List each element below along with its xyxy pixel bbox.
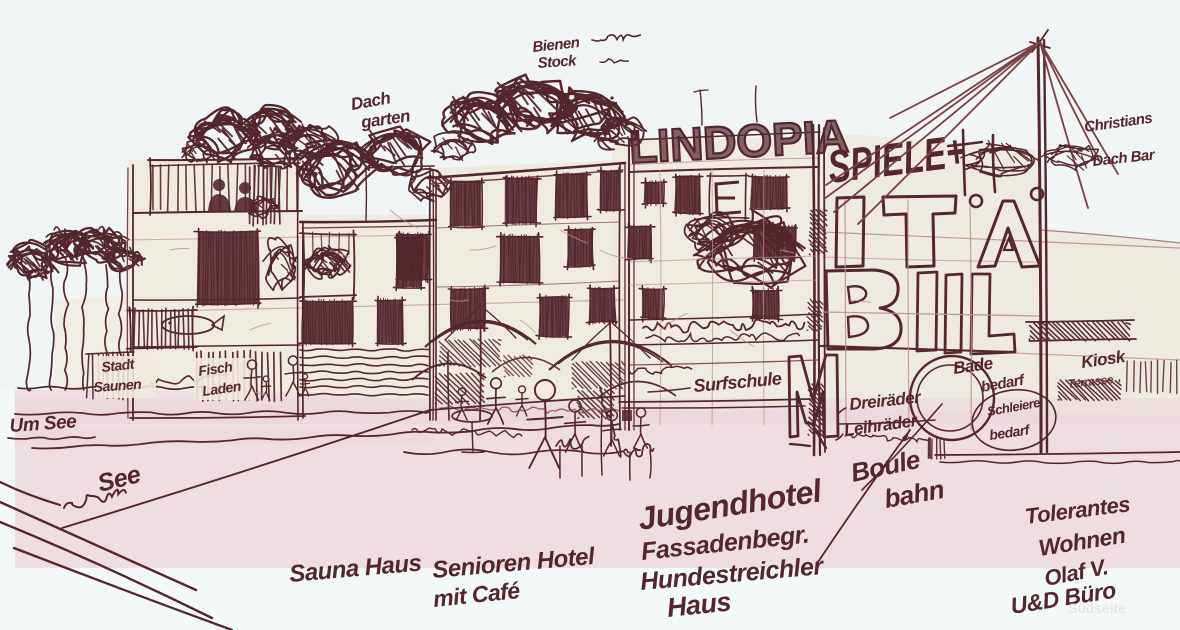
svg-text:Stock: Stock [537, 52, 578, 72]
svg-text:Südseite: Südseite [1068, 600, 1126, 616]
svg-text:Saunen: Saunen [93, 376, 142, 395]
